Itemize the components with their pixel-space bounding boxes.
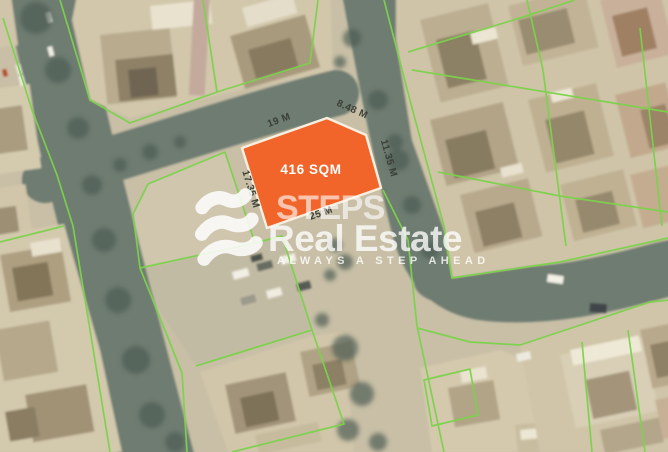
plot-area-label: 416 SQM xyxy=(280,162,341,177)
listing-map-image: 416 SQM 19 M 8.48 M 11.35 M 25 M 17.35 M… xyxy=(0,0,668,452)
satellite-map: 416 SQM 19 M 8.48 M 11.35 M 25 M 17.35 M… xyxy=(0,0,668,452)
watermark-tagline: ALWAYS A STEP AHEAD xyxy=(277,255,490,267)
watermark-brand-suffix: Real Estate xyxy=(268,218,462,259)
